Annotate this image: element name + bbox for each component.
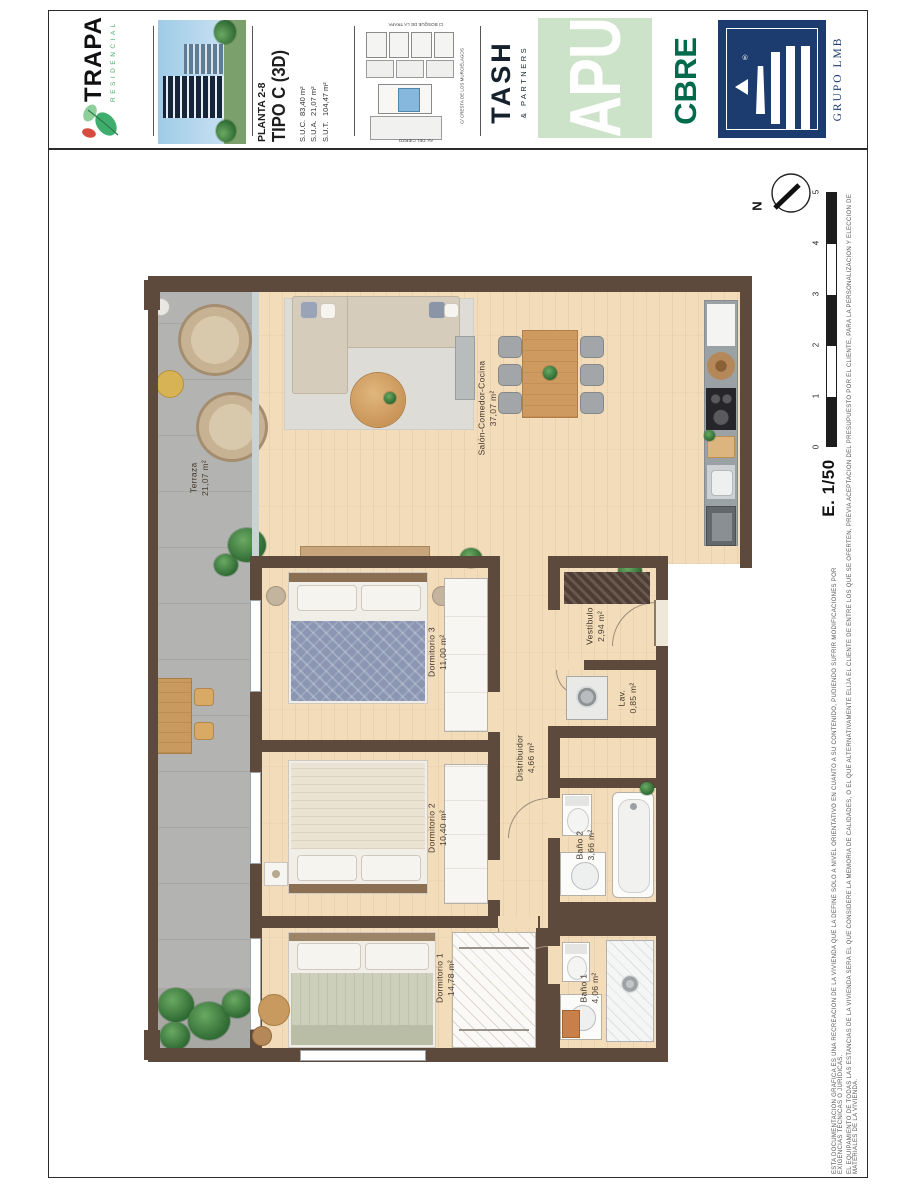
washing-machine: [566, 676, 608, 720]
room-label-dorm3: Dormitorio 311,00 m²: [427, 627, 450, 677]
street-right-label: C/ CRESTA DE LOS MURCIÉLAGOS: [460, 48, 465, 124]
room-label-bath2: Baño 23,66 m²: [575, 830, 598, 861]
lmb-logo: ®: [718, 20, 826, 138]
scale-tick: 0: [812, 445, 821, 449]
map-building-row: [366, 60, 454, 78]
plan-info: PLANTA 2-8 TIPO C (3D) S.U.C.83,40 m² S.…: [256, 22, 352, 142]
apu-name: APU: [553, 18, 637, 137]
wall-right-living: [740, 276, 752, 568]
oven: [706, 506, 736, 546]
room-label-terraza: Terraza21,07 m²: [189, 460, 212, 496]
side-table: [156, 370, 184, 398]
cbre-logo: CBRE: [660, 24, 712, 138]
kitchen-sink: [706, 464, 736, 500]
scale-tick: 2: [812, 343, 821, 347]
header-divider: [153, 26, 154, 136]
building-photo: [158, 20, 246, 144]
lmb-registered-mark: ®: [742, 53, 749, 60]
street-bottom-label: AV. DEL CIERZO: [399, 138, 434, 143]
floor-plan-sheet: TRAPA RESIDENCIAL PLANTA 2-8 TIPO C (3D)…: [0, 0, 918, 1188]
outdoor-chair: [194, 722, 214, 740]
scale-tick: 1: [812, 394, 821, 398]
planta-label: PLANTA 2-8: [256, 22, 268, 142]
room-label-dorm2: Dormitorio 210,40 m²: [427, 803, 450, 853]
nightstand: [264, 862, 288, 886]
map-block: [370, 116, 442, 140]
room-label-vestibulo: Vestíbulo2,94 m²: [585, 607, 608, 645]
window-dorm1-bottom: [300, 1050, 426, 1061]
wall-bath2-bath1: [556, 902, 668, 936]
header-divider: [354, 26, 355, 136]
wall-vestibulo-left: [548, 568, 560, 610]
cooktop: [706, 388, 736, 430]
disclaimer-line1: ESTA DOCUMENTACIÓN GRÁFICA ES UNA RECREA…: [832, 560, 840, 1174]
fridge: [706, 303, 736, 347]
suc-value: 83,40 m²: [298, 86, 307, 116]
disclaimer-line2: EL EQUIPAMIENTO DE TODAS LAS ESTANCIAS D…: [847, 172, 855, 1174]
wall-living-vestibulo: [548, 556, 668, 568]
entry-mat: [564, 572, 650, 604]
window-dorm3: [250, 600, 261, 692]
wall-top: [148, 276, 752, 292]
kitchen-basket: [707, 352, 735, 380]
room-label-dorm1: Dormitorio 114,78 m²: [435, 953, 458, 1003]
round-table: [252, 1026, 272, 1046]
brand-name: TRAPA: [80, 16, 108, 102]
sua-label: S.U.A.: [308, 116, 319, 142]
window-dorm2: [250, 772, 261, 864]
trapa-leaf-icon: [76, 100, 122, 140]
wardrobe-dorm2: [444, 764, 488, 904]
tash-name: TASH: [486, 28, 517, 136]
scale-tick: 4: [812, 241, 821, 245]
wall-terrace-left: [148, 284, 158, 1060]
lmb-triangle-icon: [735, 79, 748, 95]
bed-dorm2: [288, 760, 428, 894]
north-label: N: [750, 201, 765, 210]
north-arrow-icon: [766, 168, 816, 218]
sua-value: 21,07 m²: [309, 86, 318, 116]
room-label-lav: Lav.0,85 m²: [617, 683, 640, 714]
photo-building: [184, 44, 229, 74]
tash-sub: & PARTNERS: [519, 28, 528, 136]
round-table: [258, 994, 290, 1026]
wall-dorm3-dorm2: [256, 740, 500, 752]
site-map: C/ BOSQUE DE LA TRAPA C/ CRESTA DE LOS M…: [360, 14, 472, 144]
photo-tower: [163, 76, 229, 118]
lmb-name: GRUPO LMB: [832, 37, 844, 122]
header-separator: [48, 148, 868, 150]
brand-sub: RESIDENCIAL: [110, 16, 117, 102]
wall-lav-top: [584, 660, 668, 670]
sut-label: S.U.T.: [320, 116, 331, 142]
cbre-name: CBRE: [668, 37, 704, 125]
room-label-salon: Salón-Comedor-Cocina37,07 m²: [477, 361, 500, 456]
scale-tick: 5: [812, 190, 821, 194]
nightstand: [266, 586, 286, 606]
sut-value: 104,47 m²: [321, 82, 330, 116]
map-highlighted-unit: [398, 88, 420, 112]
scale-bar: [826, 192, 837, 447]
entry-door-leaf: [654, 600, 656, 646]
living-glazing: [252, 292, 259, 556]
wall-pier: [144, 280, 160, 310]
room-label-distribuidor: Distribuidor4,66 m²: [515, 735, 538, 782]
wardrobe-dorm3: [444, 578, 488, 732]
walk-in-closet: [452, 932, 536, 1048]
bath-shelf: [562, 1010, 580, 1038]
scale-label: E. 1/50: [819, 459, 839, 516]
media-cabinet: [455, 336, 475, 400]
bathtub: [612, 792, 654, 898]
coffee-table: [351, 373, 405, 427]
apu-logo: APU: [538, 18, 652, 138]
scale-tick: 3: [812, 292, 821, 296]
header-divider: [480, 26, 481, 136]
wall-living-dorm3: [256, 556, 500, 568]
outdoor-chair: [194, 688, 214, 706]
bed-dorm3: [288, 572, 428, 704]
bed-dorm1: [288, 932, 436, 1048]
header-divider: [252, 26, 253, 136]
map-building-row: [366, 32, 454, 58]
room-label-bath1: Baño 14,06 m²: [579, 973, 602, 1004]
tipo-label: TIPO C (3D): [269, 32, 290, 142]
street-top-label: C/ BOSQUE DE LA TRAPA: [389, 22, 444, 27]
suc-label: S.U.C.: [297, 116, 308, 142]
lounge-chair: [178, 304, 252, 376]
shower: [606, 940, 654, 1042]
wall-lav-bottom: [548, 726, 668, 738]
trapa-logo: TRAPA RESIDENCIAL: [58, 22, 152, 140]
